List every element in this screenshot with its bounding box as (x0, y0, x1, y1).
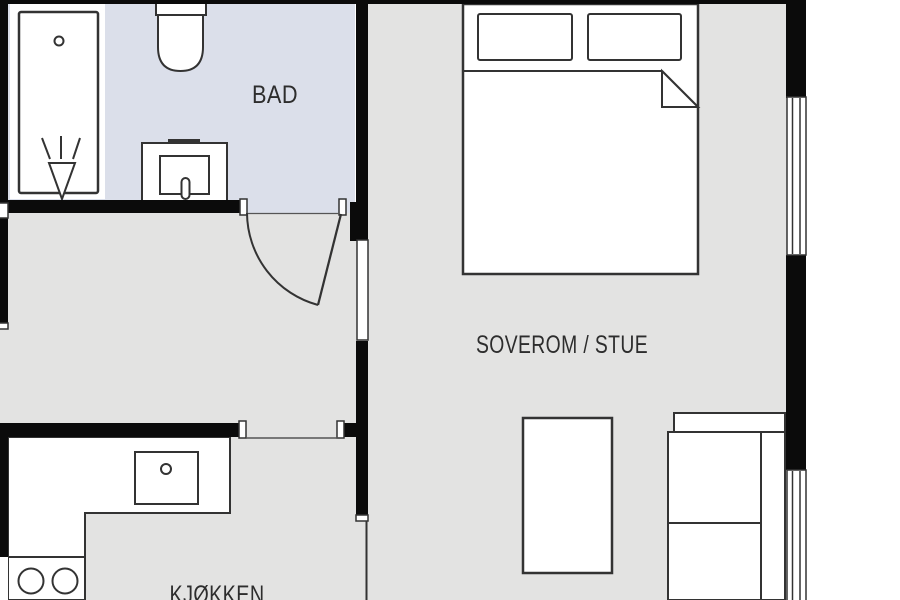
wall-left-lower (0, 423, 8, 557)
sofa-seat-1 (668, 432, 761, 523)
sink-drain-icon (161, 464, 171, 474)
pillow-left (478, 14, 572, 60)
label-kjokken: KJØKKEN (170, 581, 265, 600)
passage-thin-wall (357, 240, 368, 340)
wall-end-cap (356, 515, 368, 521)
drain-icon (55, 37, 64, 46)
left-wall-gap (0, 557, 8, 600)
floor-hall (0, 213, 360, 423)
double-bed (463, 4, 698, 274)
bath-door-jamb-left (240, 199, 247, 215)
sofa-back (674, 413, 785, 433)
sofa-seat-2 (668, 523, 761, 600)
floor-plan-screenshot: BAD SOVEROM / STUE KJØKKEN (0, 0, 900, 600)
coffee-table (523, 418, 612, 573)
wall-left-upper (0, 4, 8, 203)
wall-right-upper (786, 4, 806, 98)
window-lower (787, 470, 806, 600)
wall-bath-hall (8, 200, 243, 213)
window-upper (787, 97, 806, 255)
washbasin-tap (182, 178, 190, 199)
kitchen-door-jamb-left (239, 421, 246, 438)
toilet-bowl (158, 15, 203, 71)
wall-kitchen-corner (344, 423, 368, 437)
left-wall-notch-2 (0, 323, 8, 329)
washbasin (142, 139, 227, 201)
wall-left-mid (0, 218, 8, 323)
wall-right-mid (786, 255, 806, 470)
wall-bath-jamb-fill (350, 202, 357, 241)
wall-kitchen-hall (0, 423, 242, 437)
bathtub-shower (10, 3, 105, 199)
label-soverom-stue: SOVEROM / STUE (476, 331, 648, 359)
left-wall-notch-1 (0, 203, 8, 218)
washbasin-ledge (168, 139, 200, 144)
label-bad: BAD (252, 81, 298, 109)
sofa (668, 413, 785, 600)
bath-door-jamb-right (339, 199, 346, 215)
toilet (156, 3, 206, 71)
floor-plan-canvas: BAD SOVEROM / STUE KJØKKEN (0, 0, 900, 600)
wall-top (0, 0, 806, 4)
kitchen-door-jamb-right (337, 421, 344, 438)
wall-center-upper (356, 0, 368, 241)
pillow-right (588, 14, 681, 60)
kitchen-sink (135, 452, 198, 504)
toilet-tank (156, 3, 206, 15)
sofa-armrest (761, 432, 785, 600)
